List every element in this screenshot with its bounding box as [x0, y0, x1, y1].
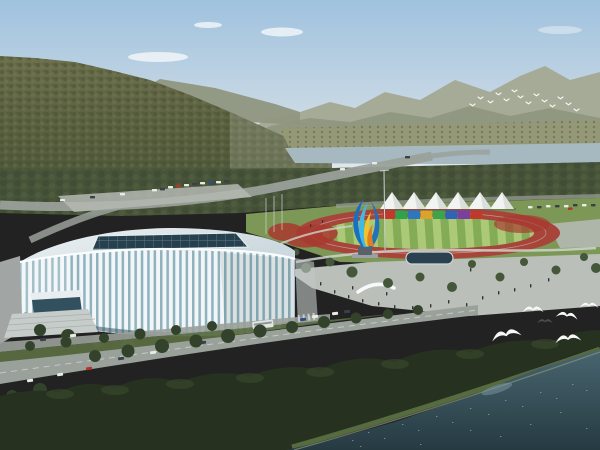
reflecting-pool	[406, 252, 453, 264]
scene-svg	[0, 0, 600, 450]
aerial-rendering	[0, 0, 600, 450]
stadium-skylight	[92, 233, 248, 250]
